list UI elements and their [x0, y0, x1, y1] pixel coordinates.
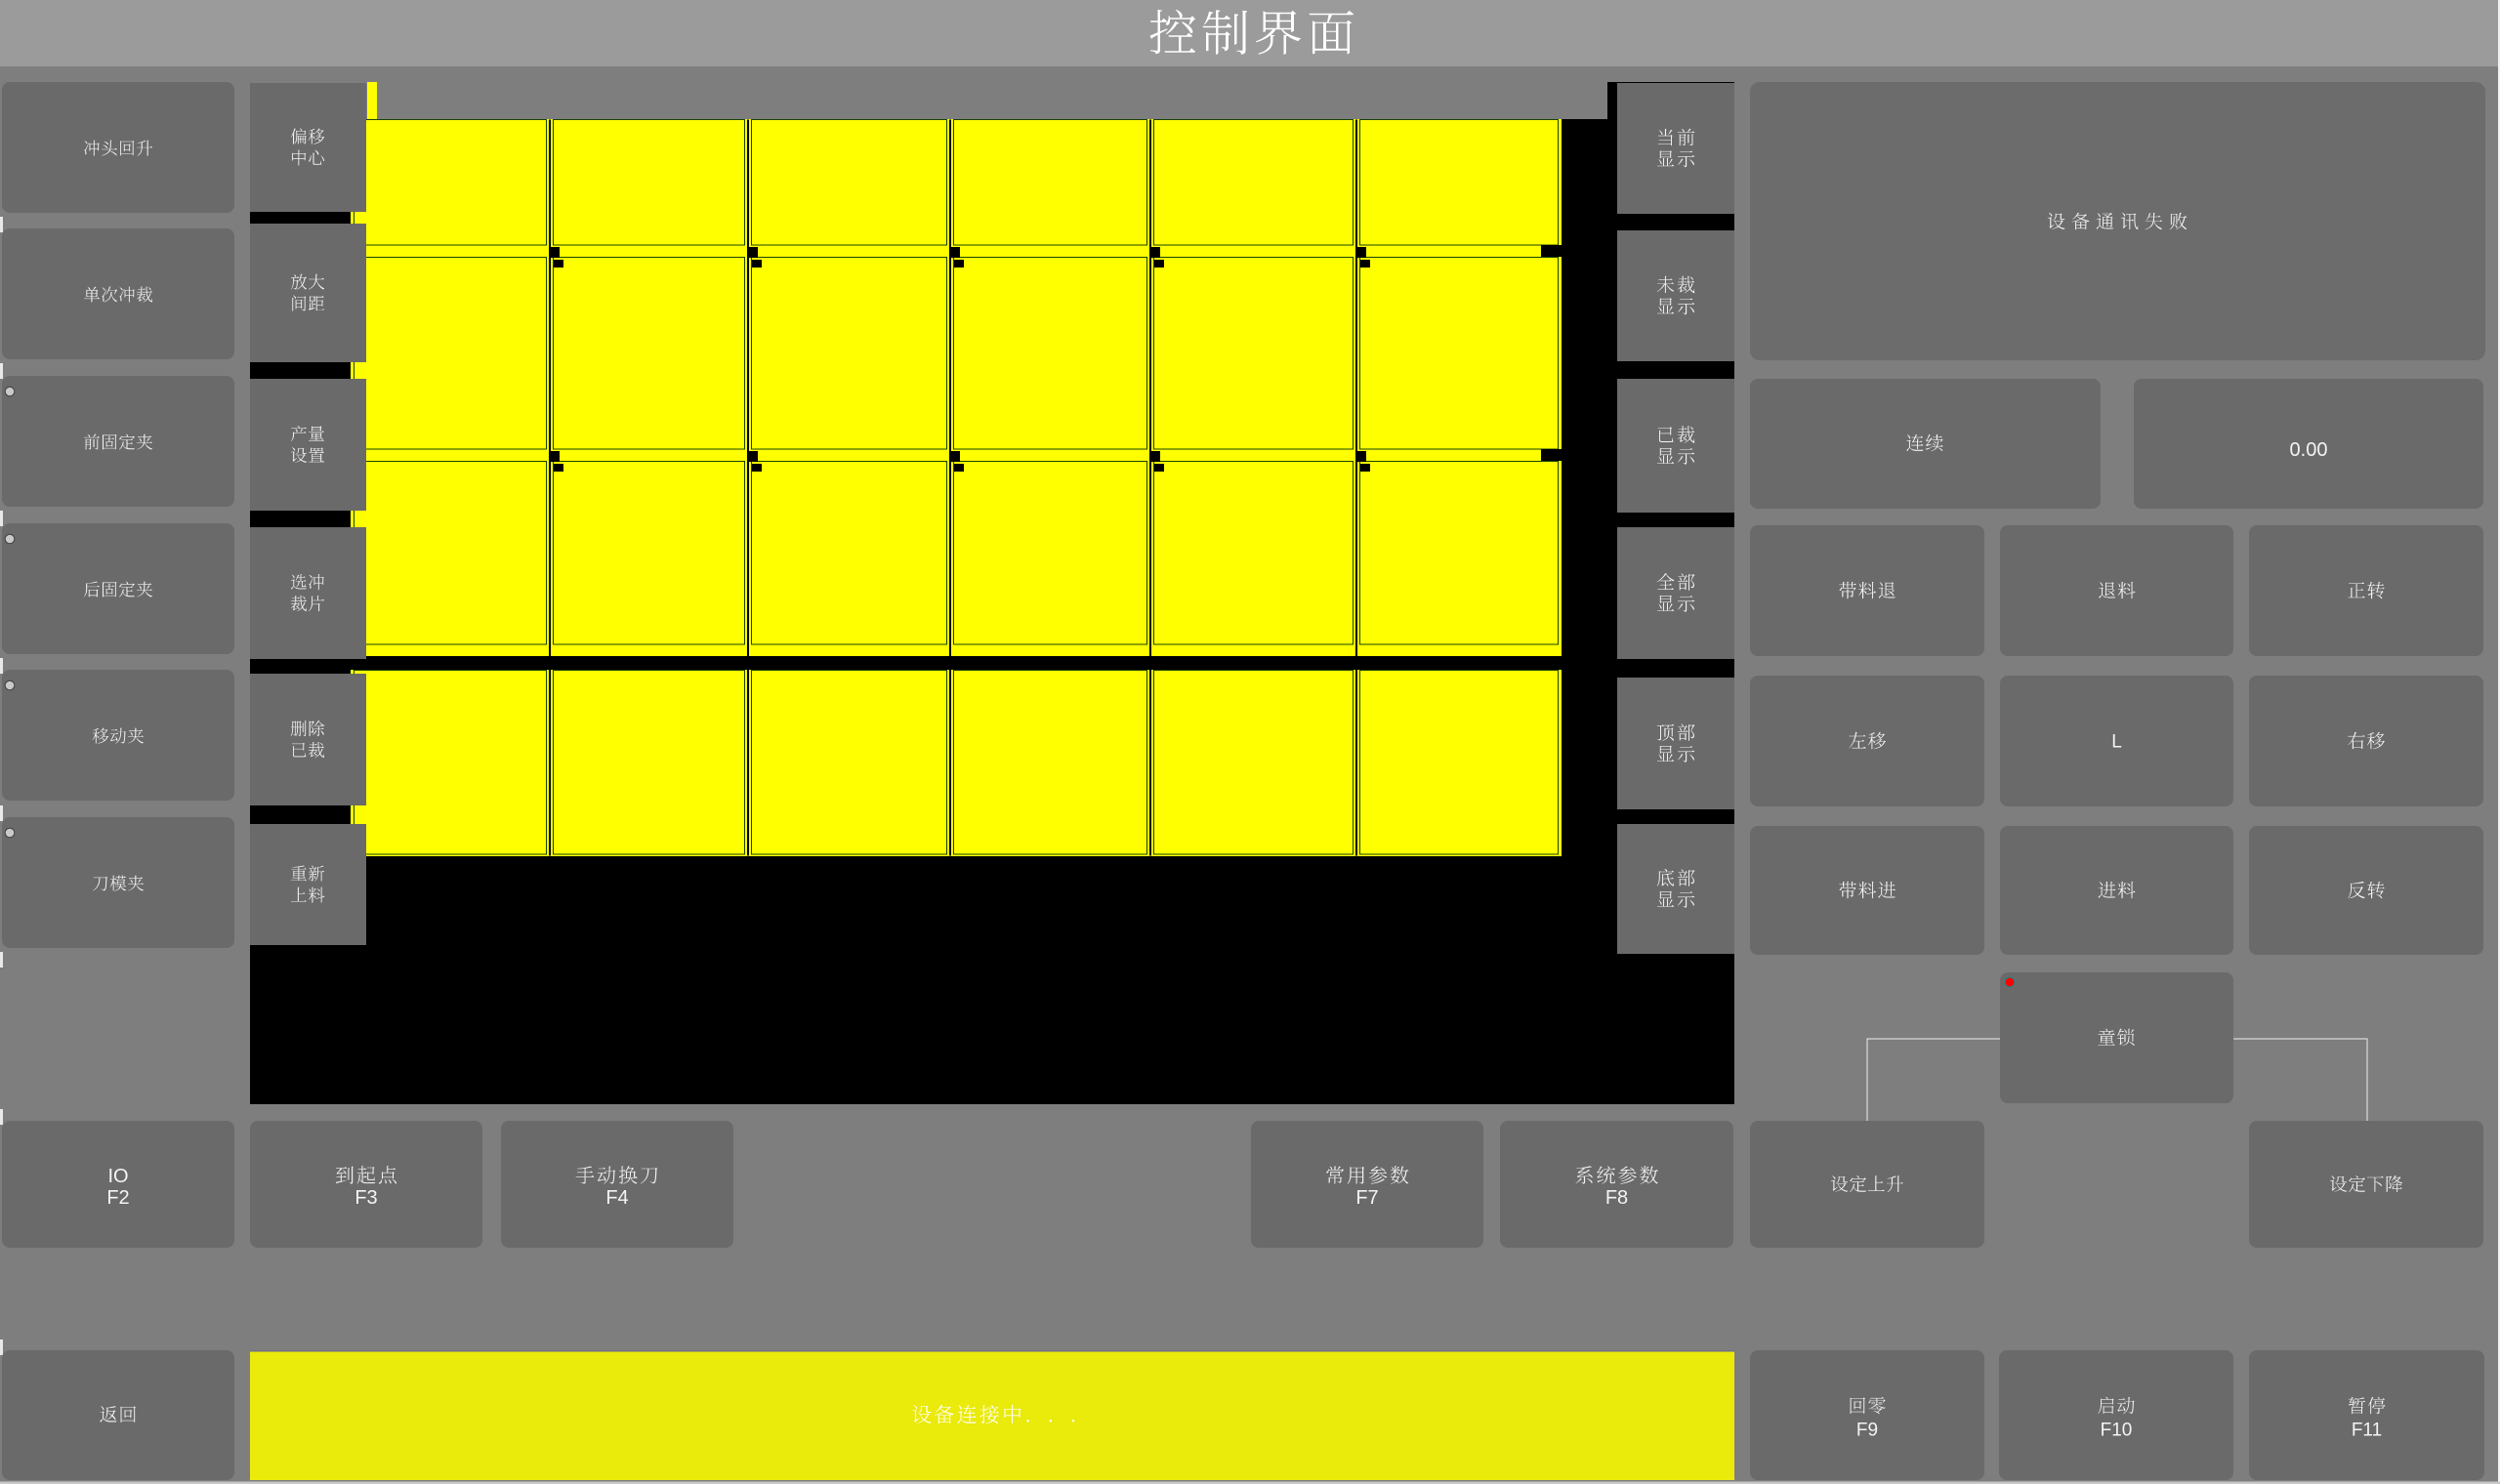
svg-text:F10: F10: [2101, 1421, 2133, 1441]
svg-text:F3: F3: [354, 1187, 377, 1209]
svg-text:F11: F11: [2352, 1421, 2382, 1441]
svg-text:IO: IO: [107, 1166, 128, 1187]
svg-text:0.00: 0.00: [2290, 439, 2328, 461]
svg-text:F7: F7: [1355, 1187, 1378, 1209]
svg-text:F4: F4: [605, 1187, 628, 1209]
svg-text:F2: F2: [106, 1187, 129, 1209]
svg-text:L: L: [2111, 732, 2122, 753]
svg-text:F8: F8: [1605, 1187, 1628, 1209]
svg-text:F9: F9: [1856, 1421, 1878, 1441]
